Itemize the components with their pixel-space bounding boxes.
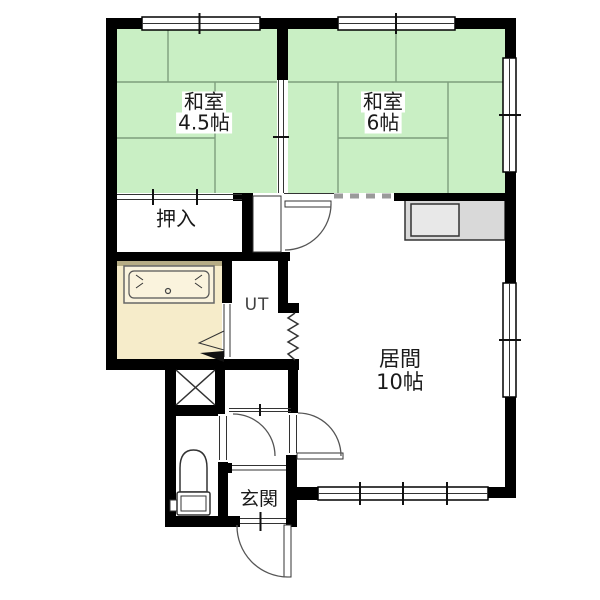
door-hall-to-living [297, 413, 343, 459]
label-washitsu45-name: 和室 [182, 92, 226, 113]
label-washitsu6-name: 和室 [361, 92, 405, 113]
door-washitsu6-to-living [285, 201, 331, 250]
front-door [237, 525, 291, 577]
toilet-bowl [180, 450, 207, 492]
closet-fusuma-doors [117, 195, 242, 200]
front-door-opening [240, 516, 286, 527]
label-living-size: 10帖 [376, 371, 424, 393]
label-utility: UT [245, 297, 270, 315]
entrance-step-lines [232, 466, 286, 471]
floor-plan-drawing [0, 0, 600, 600]
label-closet: 押入 [156, 209, 196, 230]
toilet-tank-lid [181, 496, 206, 511]
label-living-name: 居間 [379, 348, 421, 370]
label-entrance: 玄関 [240, 490, 278, 510]
label-washitsu6-size: 6帖 [365, 113, 402, 134]
kitchen-counter [405, 200, 505, 240]
window-bottom [318, 482, 488, 505]
window-right-lower [499, 283, 521, 397]
window-right-upper [499, 58, 521, 172]
storage-x-box [176, 370, 215, 405]
label-washitsu45-size: 4.5帖 [176, 113, 232, 134]
floor-plan: 和室 4.5帖 和室 6帖 押入 UT 居間 10帖 玄関 [0, 0, 600, 600]
door-toilet [233, 414, 275, 456]
alcove-nook [253, 196, 281, 252]
accordion-door [288, 313, 298, 360]
bathroom [117, 261, 222, 359]
kitchen-sink [411, 204, 459, 236]
